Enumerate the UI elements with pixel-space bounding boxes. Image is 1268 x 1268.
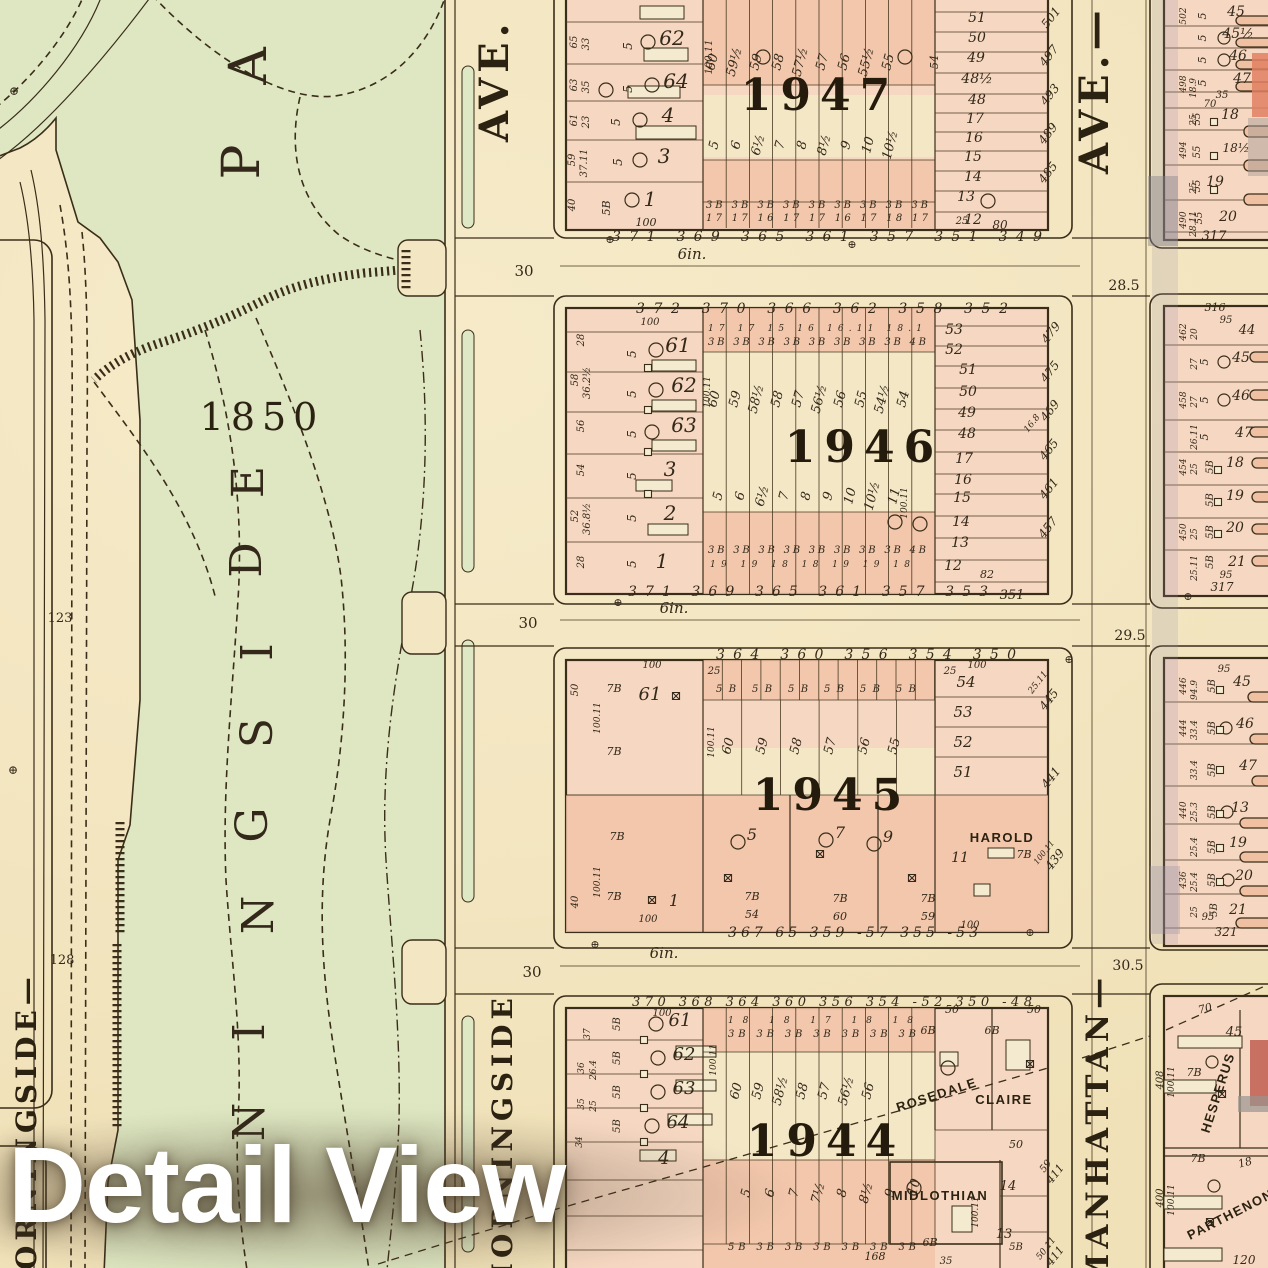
map-label: 371 369 365 361 357 351 349 — [612, 229, 1042, 245]
map-label: 50 — [570, 683, 581, 696]
building-label-harold: HAROLD — [970, 830, 1035, 845]
map-label: 54 — [928, 55, 941, 69]
map-label: ⊕ — [1064, 653, 1073, 666]
map-label: 28 — [576, 556, 587, 570]
map-label: 50 — [1009, 1138, 1023, 1151]
map-label: 5 — [625, 472, 639, 480]
map-label: 25.3 — [1190, 802, 1200, 823]
map-label: 5 — [1196, 13, 1209, 20]
map-label: 5B — [612, 1085, 623, 1099]
map-label: 6B — [984, 1024, 999, 1037]
map-label: 5B — [1207, 679, 1218, 693]
stoop-marker — [641, 1071, 648, 1078]
map-label: ⊠ — [723, 871, 734, 886]
map-label: 502 — [1179, 7, 1189, 24]
map-label: 20 — [1225, 520, 1244, 536]
map-label: 60 — [833, 910, 847, 923]
street-width: 30.5 — [1112, 958, 1143, 974]
building-bar — [1252, 492, 1268, 502]
street-width: 30 — [514, 262, 533, 280]
map-label: 100 — [642, 660, 662, 671]
map-label: 21 — [1228, 902, 1247, 918]
map-label: 5B — [1207, 721, 1218, 735]
map-label: 5 — [1196, 57, 1209, 64]
street-label-morningside-ave: AVE. — [471, 18, 518, 143]
map-label: 47 — [1232, 71, 1251, 87]
map-label: ⊕ — [9, 84, 19, 98]
map-label: 7B — [1190, 1152, 1205, 1165]
map-label: 53 — [945, 322, 963, 338]
map-label: 5B — [612, 1051, 623, 1065]
stoop-marker — [645, 407, 652, 414]
map-label: 13 — [951, 535, 969, 551]
map-label: 52 — [945, 342, 963, 358]
map-label: 1 — [656, 549, 669, 573]
map-label: 50 — [968, 30, 986, 46]
map-label: 25.4 — [1190, 872, 1200, 893]
map-label: 2 — [663, 501, 677, 525]
map-label: ⊕ — [590, 938, 599, 951]
street-width: 28.5 — [1108, 278, 1139, 294]
map-label: 50 — [959, 384, 977, 400]
map-label: 123 — [48, 611, 73, 626]
map-label: 7B — [1186, 1066, 1201, 1079]
map-label: 45 — [1226, 4, 1245, 20]
map-label: 58 — [570, 374, 581, 387]
map-label: 5B — [1207, 805, 1218, 819]
map-label: 3 — [658, 144, 671, 168]
map-label: 100.11 — [900, 487, 910, 519]
map-label: 45 — [1225, 1025, 1243, 1040]
map-label: 100.11 — [1167, 1066, 1177, 1098]
pipe-label: 6in. — [650, 944, 679, 962]
map-label: 82 — [980, 568, 994, 581]
map-label: 5 — [747, 825, 757, 844]
map-label: 25 — [1190, 463, 1200, 476]
map-label: 4 — [661, 103, 675, 127]
map-label: 18 — [1226, 455, 1244, 471]
map-label: 20 — [1190, 328, 1200, 341]
map-label: 5 — [625, 514, 639, 522]
map-label: 18 — [1221, 107, 1239, 123]
map-label: 59 — [567, 153, 578, 166]
map-label: 321 — [1215, 925, 1238, 939]
map-label: 444 — [1179, 719, 1189, 737]
map-label: 5B — [1207, 840, 1218, 854]
map-label: 19 — [1206, 174, 1224, 190]
park-letter: I — [224, 1023, 275, 1040]
map-label: 100.11 — [593, 702, 603, 734]
map-label: 47 — [1234, 425, 1253, 441]
map-label: 54 — [745, 908, 759, 921]
map-label: 25 — [1190, 906, 1200, 919]
map-label: 371 369 365 361 357 353 — [628, 584, 988, 600]
map-label: 20 — [1234, 868, 1253, 884]
map-label: 14 — [1000, 1179, 1017, 1194]
map-label: 54 — [956, 673, 975, 691]
map-label: 28.11 — [1189, 211, 1199, 238]
map-label: 100.11 — [707, 726, 717, 758]
map-label: 46 — [1228, 48, 1247, 64]
building-bar — [1250, 390, 1268, 400]
map-label: 5 — [625, 350, 639, 358]
map-label: 33.4 — [1190, 760, 1200, 780]
map-label: 14 — [952, 514, 970, 530]
map-label: 63 — [671, 413, 696, 437]
map-label: 50 — [1027, 1003, 1041, 1016]
map-label: 61 — [669, 1010, 692, 1031]
building-bar — [1240, 818, 1268, 828]
map-label: 49 — [957, 405, 976, 421]
map-label: 5B — [1205, 460, 1216, 474]
map-label: ⊠ — [671, 689, 682, 704]
map-label: 1 — [644, 187, 657, 211]
street-width: 30 — [522, 963, 541, 981]
map-label: 5B — [600, 200, 613, 215]
street-width: 30 — [518, 614, 537, 632]
map-label: 59 — [921, 910, 935, 923]
map-label: ⊕ — [613, 596, 622, 609]
map-label: 52 — [953, 733, 972, 751]
map-label: 317 — [1211, 580, 1234, 594]
map-label: 25 — [1189, 182, 1199, 195]
map-label: ⊕ — [605, 233, 614, 246]
map-label: 7B — [606, 682, 621, 695]
map-label: 316 — [1205, 301, 1226, 314]
map-label: 19 — [1226, 488, 1244, 504]
map-label: 52 — [570, 510, 581, 523]
map-label: 62 — [659, 26, 684, 50]
map-label: 46 — [1235, 716, 1254, 732]
map-label: 7B — [1016, 848, 1031, 861]
map-label: 54 — [576, 464, 587, 477]
map-label: 100.11 — [709, 1044, 719, 1076]
park-letter: G — [227, 807, 278, 842]
map-label: 16 — [965, 130, 983, 146]
map-label: 35 — [581, 81, 592, 94]
map-label: 100 — [640, 317, 660, 328]
map-label: ⊕ — [1025, 926, 1034, 939]
map-label: 27 — [1190, 358, 1200, 371]
map-label: 33.4 — [1190, 720, 1200, 740]
map-label: 94.9 — [1190, 680, 1200, 700]
park-letter: P — [212, 145, 272, 180]
map-label: 16 — [954, 472, 972, 488]
stoop-marker — [645, 491, 652, 498]
map-label: 6B — [922, 1236, 937, 1249]
map-label: 5 — [625, 560, 639, 568]
map-label: 51 — [959, 362, 977, 378]
map-label: 5B — [1205, 493, 1216, 507]
map-label: 15 — [953, 490, 971, 506]
building-bar — [1250, 352, 1268, 362]
map-label: 45½ — [1221, 26, 1253, 42]
map-label: 5 — [611, 158, 625, 166]
map-label: 498 — [1179, 75, 1189, 93]
block-number-1947: 1947 — [741, 70, 899, 121]
map-label: 5B — [1207, 873, 1218, 887]
map-label: 47 — [1238, 758, 1257, 774]
map-label: 7B — [606, 890, 621, 903]
map-label: 25 — [943, 666, 957, 677]
map-label: 45 — [1231, 350, 1250, 366]
map-label: 37 — [583, 1028, 593, 1040]
map-label: 21 — [1227, 554, 1246, 570]
stoop-marker — [641, 1037, 648, 1044]
park-letter: E — [223, 466, 274, 498]
map-label: 23 — [581, 116, 592, 130]
map-label: 440 — [1179, 801, 1189, 819]
map-label: 100 — [960, 920, 980, 931]
map-label: 45 — [1232, 674, 1251, 690]
map-label: 95 — [1218, 664, 1231, 675]
park-letter: D — [221, 542, 272, 577]
morningside-park — [0, 0, 445, 1268]
park-letter: N — [233, 896, 284, 935]
map-label: 17 — [966, 111, 984, 127]
map-label: 5 — [621, 42, 635, 50]
map-label: 19 — [1229, 835, 1247, 851]
map-label: 5 — [609, 118, 623, 126]
map-label: 27 — [1190, 396, 1200, 409]
map-label: 61 — [639, 684, 662, 705]
map-label: 9 — [883, 827, 893, 846]
map-label: 12 — [944, 558, 962, 574]
map-label: 49 — [966, 50, 985, 66]
map-label: 5 — [1196, 35, 1209, 42]
map-label: 7B — [920, 892, 935, 905]
building-bar — [1252, 776, 1268, 786]
map-label: 53 — [953, 703, 972, 721]
map-label: 63 — [673, 1078, 696, 1099]
map-label: 35 — [577, 1098, 587, 1110]
map-label: 25.4 — [1190, 837, 1200, 858]
map-label: 62 — [673, 1044, 696, 1065]
map-label: 370 368 364 360 356 354 -52 350 -48 — [632, 995, 1032, 1010]
stoop-marker — [1211, 153, 1218, 160]
map-label: 168 — [865, 1250, 886, 1263]
map-label: 3 — [664, 457, 677, 481]
map-label: 7B — [606, 745, 621, 758]
park-letter: I — [232, 643, 283, 660]
map-label: 44 — [1238, 323, 1256, 338]
map-label: 40 — [567, 198, 578, 212]
map-label: 26.11 — [1190, 424, 1200, 451]
map-label: 26.4 — [589, 1060, 599, 1081]
map-label: 35 — [940, 1256, 953, 1267]
map-label: 62 — [671, 373, 696, 397]
map-label: 63 — [569, 79, 580, 92]
map-label: 35 — [1216, 90, 1229, 101]
park-letter: A — [219, 46, 279, 86]
map-label: 317 — [1202, 229, 1228, 244]
map-label: 5B — [1207, 763, 1218, 777]
park-plot-number: 1850 — [200, 395, 325, 439]
map-label: 48½ — [960, 71, 992, 87]
map-label: 100 — [638, 914, 658, 925]
map-label: 100.11 — [703, 376, 713, 408]
map-label: 11 — [951, 850, 969, 866]
map-label: 5B — [1205, 555, 1216, 569]
map-label: 65 — [569, 36, 580, 49]
map-label: 25 — [955, 216, 969, 227]
stoop-marker — [1211, 119, 1218, 126]
map-label: 450 — [1179, 523, 1189, 541]
map-label: 28 — [576, 334, 587, 348]
map-label: 408 — [1155, 1070, 1166, 1090]
map-label: ⊠ — [647, 893, 658, 908]
map-label: 48 — [967, 92, 986, 108]
map-label: ⊠ — [1025, 1057, 1036, 1072]
map-label: 95 — [1220, 315, 1233, 326]
map-label: 446 — [1179, 677, 1189, 695]
stoop-marker — [645, 449, 652, 456]
map-label: 61 — [665, 333, 690, 357]
map-label: 490 — [1179, 211, 1189, 229]
map-label: 5B — [612, 1017, 623, 1031]
block-number-1945: 1945 — [753, 770, 911, 821]
map-label: 494 — [1179, 141, 1189, 159]
map-label: 400 — [1155, 1188, 1166, 1209]
map-label: 36.2½ — [582, 367, 593, 399]
map-label: ⊕ — [8, 763, 18, 777]
map-label: 100.11 — [593, 866, 603, 898]
map-label: 51 — [953, 763, 972, 781]
building-label-claire: CLAIRE — [975, 1092, 1032, 1107]
map-label: 100 — [636, 216, 657, 229]
map-label: 13 — [1231, 800, 1249, 816]
pipe-label: 6in. — [678, 245, 707, 263]
map-label: 128 — [50, 953, 75, 968]
building-bar — [1240, 886, 1268, 896]
map-label: 95 — [1202, 912, 1215, 923]
building-bar — [1250, 734, 1268, 744]
building-bar — [1236, 918, 1268, 928]
map-label: 6B — [920, 1024, 935, 1037]
building-label-midlothian: MIDLOTHIAN — [892, 1188, 989, 1203]
map-label: 64 — [663, 69, 688, 93]
map-label: ⊕ — [1183, 590, 1192, 603]
map-label: 5B — [1009, 1242, 1023, 1253]
detail-view-title: Detail View — [8, 1122, 565, 1247]
map-label: 48 — [957, 426, 976, 442]
map-label: 120 — [1233, 1253, 1256, 1267]
map-label: 25 — [1190, 528, 1200, 541]
map-label: 7B — [744, 890, 759, 903]
map-label: 33 — [581, 38, 592, 51]
map-label: 1 — [669, 891, 679, 910]
map-label: 14 — [964, 169, 982, 185]
map-label: 25.11 — [1190, 555, 1200, 582]
building-bar — [1252, 458, 1268, 468]
building-bar — [1248, 692, 1268, 702]
map-label: 5B — [1205, 525, 1216, 539]
map-label: 56 — [576, 419, 587, 432]
map-label: 7B — [609, 830, 624, 843]
map-label: 454 — [1179, 458, 1189, 476]
map-label: 25 — [1189, 114, 1199, 127]
map-label: 55 — [1192, 146, 1203, 159]
map-label: ⊠ — [907, 871, 918, 886]
map-label: 61 — [569, 114, 580, 127]
map-label: 18½ — [1223, 141, 1250, 155]
map-label: 18.9 — [1189, 78, 1199, 98]
map-label: 25 — [707, 666, 721, 677]
map-label: 5 — [625, 390, 639, 398]
map-label: 37.11 — [579, 149, 590, 178]
map-label: 5 — [621, 85, 635, 93]
map-label: ⊠ — [815, 847, 826, 862]
pipe-label: 6in. — [660, 599, 689, 617]
street-label-manhattan: MANHATTAN— — [1080, 973, 1116, 1268]
map-label: 36.8½ — [582, 503, 593, 535]
building-bar — [1240, 852, 1268, 862]
map-label: 70 — [1204, 99, 1217, 110]
map-label: 436 — [1179, 871, 1189, 889]
map-label: 36 — [577, 1062, 587, 1074]
map-label: 20 — [1218, 209, 1237, 225]
map-label: 372 370 366 362 358 352 — [636, 301, 1008, 317]
block-number-1946: 1946 — [785, 422, 943, 473]
map-label: 50 — [945, 1003, 959, 1016]
map-screenshot: APEDISGNIN123128⊕⊕3028.53029.53030.56in.… — [0, 0, 1268, 1268]
park-letter: S — [232, 718, 283, 748]
map-label: 17 — [955, 451, 973, 467]
map-label: 13 — [996, 1227, 1013, 1242]
street-width: 29.5 — [1114, 628, 1145, 644]
map-canvas: APEDISGNIN123128⊕⊕3028.53029.53030.56in.… — [0, 0, 1268, 1268]
building-bar — [1252, 556, 1268, 566]
map-label: 7B — [832, 892, 847, 905]
street-label-manhattan-ave: AVE.— — [1071, 5, 1118, 175]
building-bar — [1252, 524, 1268, 534]
map-label: 462 — [1179, 323, 1189, 341]
map-label: 351 — [1000, 588, 1025, 603]
map-label: 458 — [1179, 391, 1189, 409]
map-label: 5 — [625, 430, 639, 438]
map-label: 100.11 — [1167, 1184, 1177, 1216]
map-label: 51 — [968, 10, 986, 26]
map-label: 40 — [570, 895, 581, 909]
map-label: 7 — [835, 823, 846, 842]
map-label: 15 — [964, 149, 982, 165]
map-label: 100 — [967, 660, 987, 671]
map-label: 13 — [957, 189, 975, 205]
map-label: ⊕ — [847, 238, 856, 251]
map-label: 46 — [1231, 388, 1250, 404]
stoop-marker — [645, 365, 652, 372]
building-bar — [1244, 194, 1268, 205]
